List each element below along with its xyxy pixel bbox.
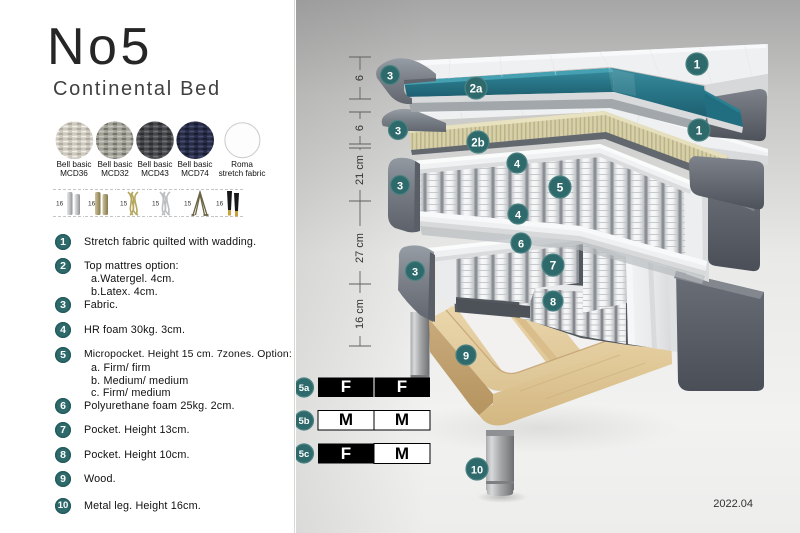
- svg-text:7: 7: [550, 259, 557, 273]
- svg-text:16: 16: [56, 201, 64, 208]
- svg-text:4: 4: [515, 210, 522, 222]
- svg-text:5b: 5b: [298, 416, 309, 427]
- svg-text:6: 6: [354, 75, 366, 81]
- svg-text:F: F: [341, 444, 351, 463]
- svg-text:F: F: [341, 377, 351, 396]
- svg-text:1: 1: [694, 58, 701, 72]
- svg-text:3: 3: [395, 126, 401, 138]
- svg-text:F: F: [397, 377, 407, 396]
- svg-text:5c: 5c: [299, 449, 310, 460]
- svg-text:15: 15: [152, 201, 160, 208]
- svg-text:3: 3: [387, 71, 393, 83]
- svg-text:2b: 2b: [471, 138, 484, 150]
- svg-text:8: 8: [550, 297, 556, 309]
- svg-text:21 cm: 21 cm: [354, 155, 366, 185]
- svg-text:15: 15: [120, 201, 128, 208]
- svg-text:2022.04: 2022.04: [713, 498, 753, 510]
- svg-text:M: M: [395, 410, 409, 429]
- svg-text:6: 6: [518, 239, 524, 251]
- svg-text:5a: 5a: [299, 383, 310, 394]
- svg-text:2a: 2a: [470, 84, 483, 96]
- svg-text:4: 4: [514, 159, 521, 171]
- svg-text:3: 3: [397, 181, 403, 193]
- svg-text:9: 9: [463, 351, 469, 363]
- svg-text:1: 1: [696, 124, 703, 138]
- svg-text:27 cm: 27 cm: [354, 233, 366, 263]
- svg-text:5: 5: [557, 181, 564, 195]
- svg-text:6: 6: [354, 125, 366, 131]
- svg-text:16 cm: 16 cm: [354, 299, 366, 329]
- svg-text:10: 10: [471, 465, 483, 477]
- svg-text:3: 3: [412, 267, 418, 279]
- svg-text:16: 16: [216, 201, 224, 208]
- svg-text:M: M: [339, 410, 353, 429]
- svg-text:15: 15: [184, 201, 192, 208]
- svg-text:M: M: [395, 444, 409, 463]
- svg-text:16: 16: [88, 201, 96, 208]
